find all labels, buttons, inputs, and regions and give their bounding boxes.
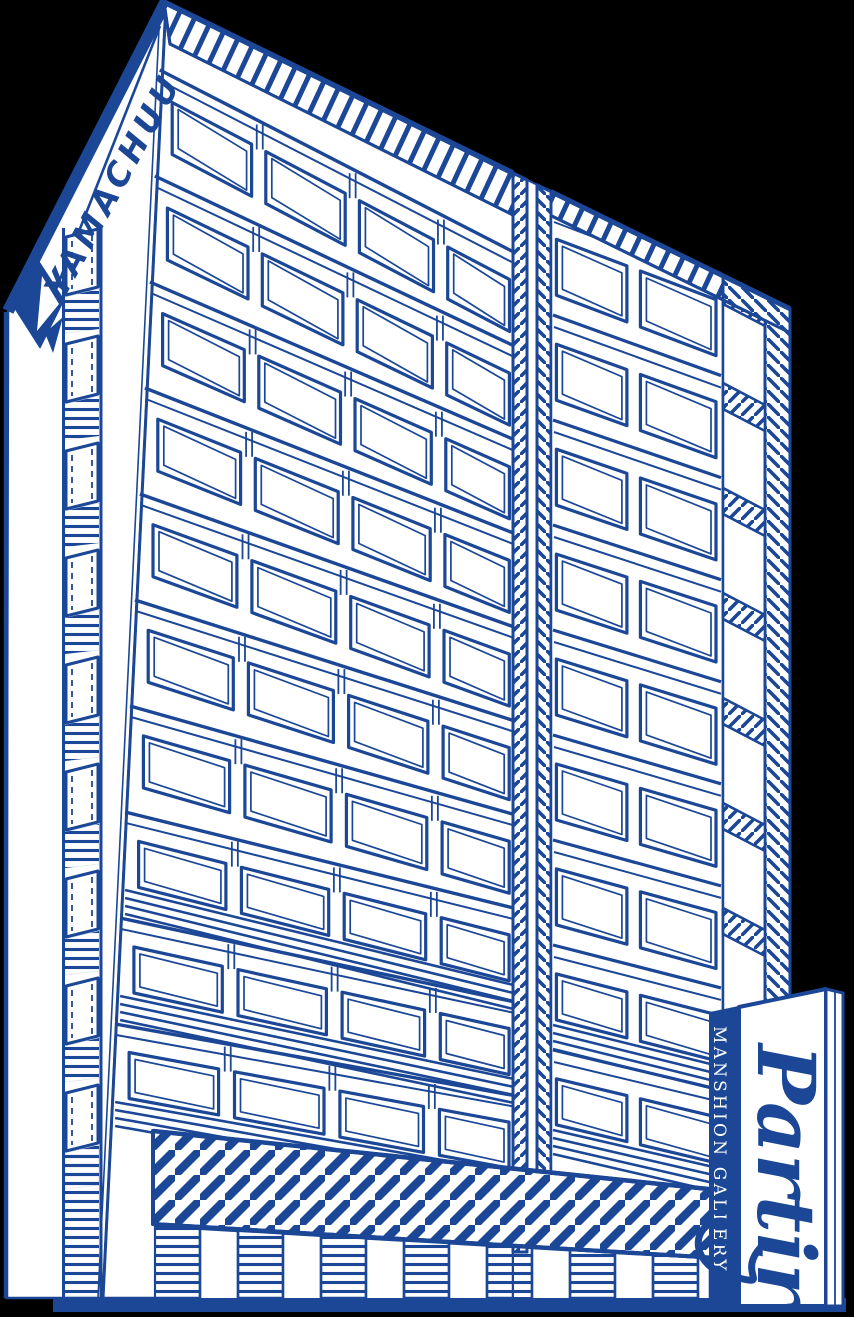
illustration-stage: YAMACHUU MANSHION GALLERY Partir xyxy=(0,0,854,1317)
front-facade xyxy=(98,2,513,1298)
sign-strip-label: MANSHION GALLERY xyxy=(709,1026,729,1274)
elevator-column xyxy=(513,173,551,1298)
manshion-gallery-text: MANSHION GALLERY xyxy=(709,1026,729,1274)
right-wing xyxy=(551,192,723,1298)
building-illustration: YAMACHUU MANSHION GALLERY Partir xyxy=(0,0,854,1317)
